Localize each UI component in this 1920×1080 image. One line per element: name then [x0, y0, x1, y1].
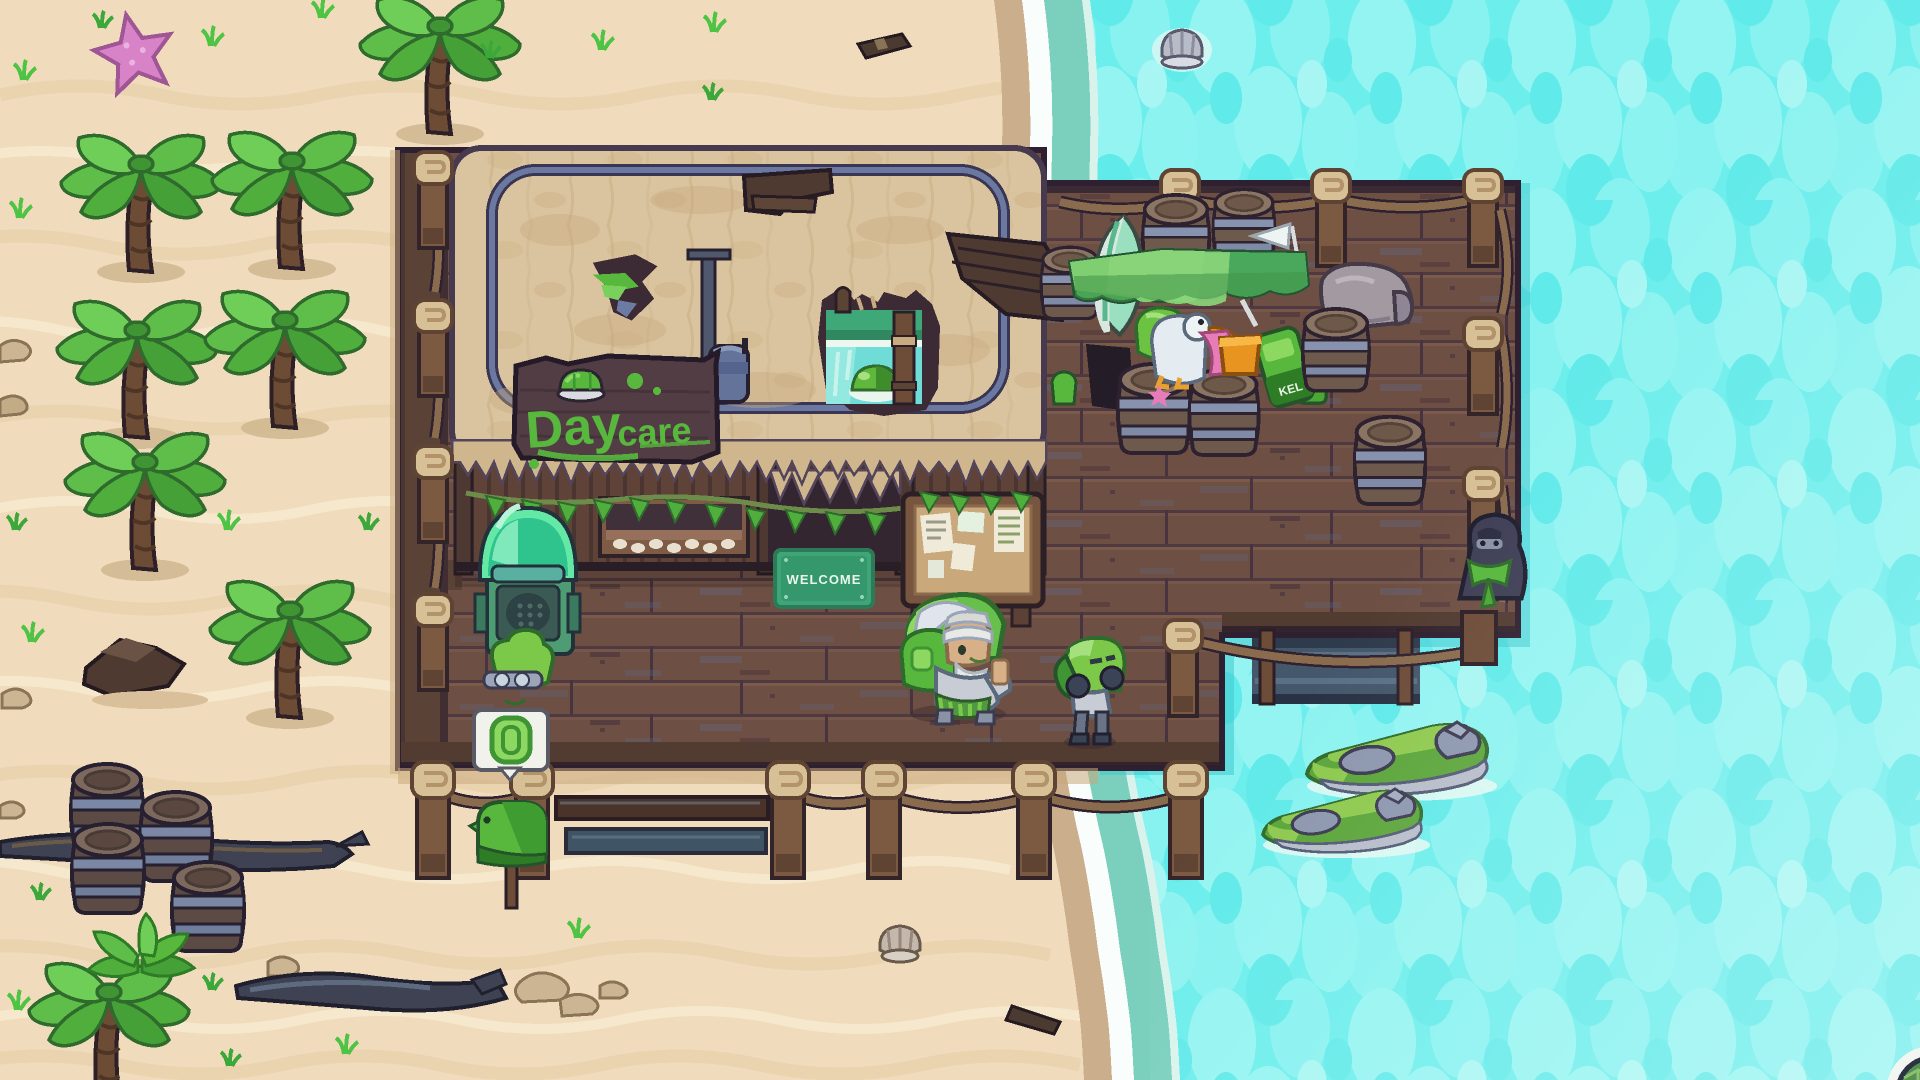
svg-text:WELCOME: WELCOME — [787, 572, 862, 587]
svg-text:care: care — [616, 409, 692, 454]
